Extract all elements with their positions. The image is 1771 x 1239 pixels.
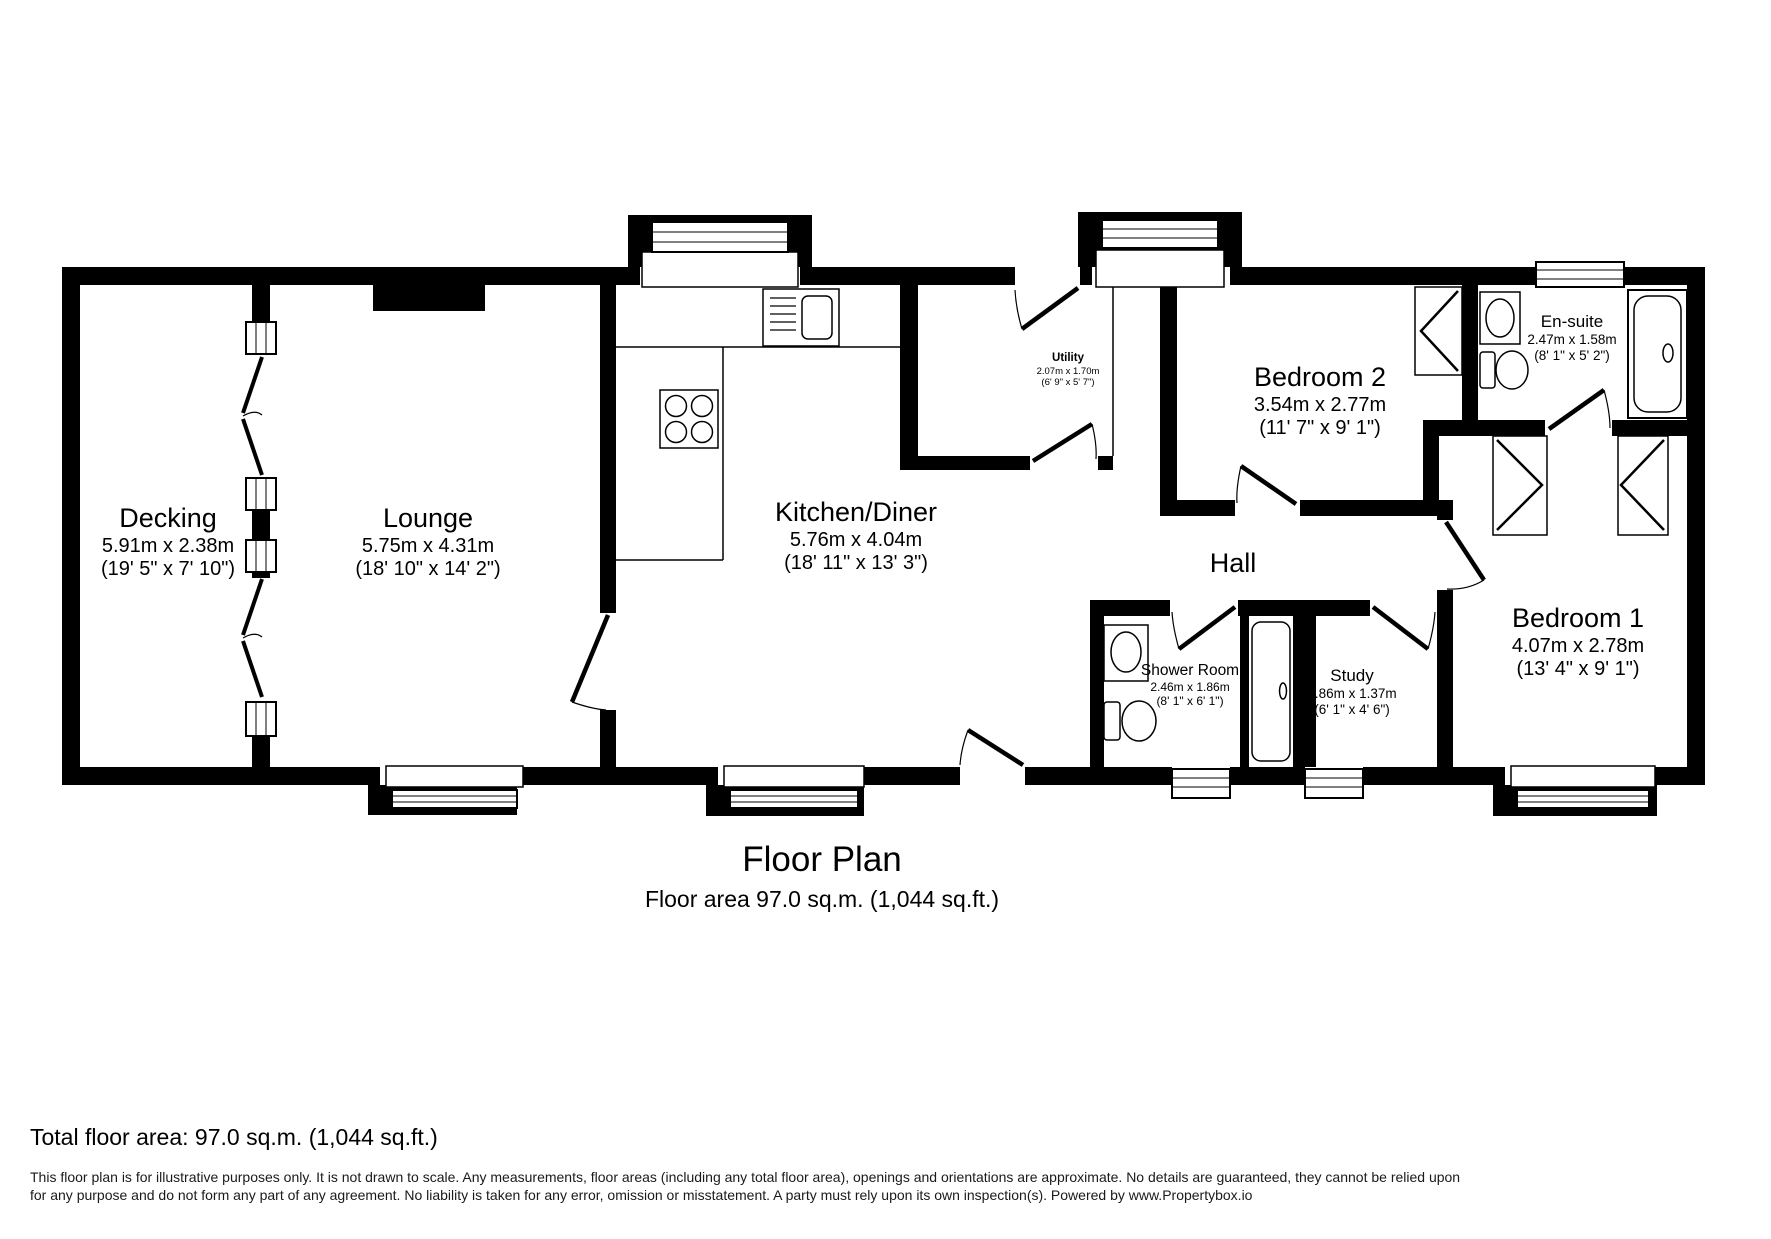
room-name: Study [1307,666,1396,686]
room-dims-metric: 3.54m x 2.77m [1254,394,1386,418]
room-dims-imperial: (18' 10" x 14' 2") [355,558,500,582]
floor-plan-drawing [0,0,1771,1239]
room-label-utility: Utility 2.07m x 1.70m (6' 9" x 5' 7") [1037,352,1100,388]
kitchen-back-door [960,730,1023,765]
bedroom1-bay-window [1517,790,1649,808]
room-name: Hall [1210,548,1257,580]
disclaimer-line-1: This floor plan is for illustrative purp… [30,1168,1750,1186]
room-name: Kitchen/Diner [775,497,937,529]
room-dims-metric: 4.07m x 2.78m [1512,635,1644,659]
room-dims-metric: 2.47m x 1.58m [1527,332,1616,348]
kitchen-lower-bay-window [730,790,858,808]
lounge-kitchen-door [572,615,608,710]
bedroom1-door [1446,522,1484,589]
study-door [1373,607,1435,649]
room-dims-metric: 5.75m x 4.31m [355,535,500,559]
room-dims-metric: 5.91m x 2.38m [101,535,235,559]
lounge-bay-window [392,790,517,808]
bedroom1-wardrobe-right [1618,436,1668,535]
room-dims-imperial: (19' 5" x 7' 10") [101,558,235,582]
utility-internal-door [1033,424,1096,461]
room-label-decking: Decking 5.91m x 2.38m (19' 5" x 7' 10") [101,503,235,582]
room-dims-metric: 5.76m x 4.04m [775,529,937,553]
room-name: Bedroom 1 [1512,603,1644,635]
room-label-bedroom2: Bedroom 2 3.54m x 2.77m (11' 7" x 9' 1") [1254,362,1386,441]
room-label-kitchen-diner: Kitchen/Diner 5.76m x 4.04m (18' 11" x 1… [775,497,937,576]
bedroom2-wardrobe [1415,287,1462,375]
ensuite-door [1549,390,1610,429]
room-dims-imperial: (11' 7" x 9' 1") [1254,417,1386,441]
bedroom2-bay-window [1102,220,1218,248]
kitchen-bay-window [652,222,788,252]
room-name: Utility [1037,352,1100,366]
room-name: Lounge [355,503,500,535]
shower-room-window [1172,769,1230,798]
ensuite-toilet [1480,351,1528,389]
room-dims-imperial: (8' 1" x 6' 1") [1141,694,1239,708]
kitchen-hob [660,390,718,448]
room-dims-metric: 2.46m x 1.86m [1141,680,1239,694]
room-dims-imperial: (6' 9" x 5' 7") [1037,377,1100,388]
ensuite-basin [1480,292,1520,344]
kitchen-sink [763,289,839,346]
study-window [1305,769,1363,798]
room-dims-metric: 1.86m x 1.37m [1307,686,1396,702]
ensuite-window [1536,262,1624,287]
room-label-lounge: Lounge 5.75m x 4.31m (18' 10" x 14' 2") [355,503,500,582]
room-name: Shower Room [1141,662,1239,680]
room-label-shower-room: Shower Room 2.46m x 1.86m (8' 1" x 6' 1"… [1141,662,1239,709]
utility-external-door [1015,288,1078,329]
room-name: Bedroom 2 [1254,362,1386,394]
floor-plan-page: Decking 5.91m x 2.38m (19' 5" x 7' 10") … [0,0,1771,1239]
room-dims-imperial: (18' 11" x 13' 3") [775,552,937,576]
floor-area-subtitle: Floor area 97.0 sq.m. (1,044 sq.ft.) [645,886,999,913]
shower-enclosure [1252,622,1290,761]
room-name: Decking [101,503,235,535]
bedroom2-door [1237,466,1296,504]
page-title: Floor Plan [742,840,902,880]
disclaimer-line-2: for any purpose and do not form any part… [30,1186,1750,1204]
shower-room-door [1172,607,1235,649]
bedroom1-wardrobe-left [1493,436,1547,535]
total-floor-area: Total floor area: 97.0 sq.m. (1,044 sq.f… [30,1124,438,1151]
room-label-study: Study 1.86m x 1.37m (6' 1" x 4' 6") [1307,666,1396,718]
room-label-ensuite: En-suite 2.47m x 1.58m (8' 1" x 5' 2") [1527,312,1616,364]
room-dims-imperial: (13' 4" x 9' 1") [1512,658,1644,682]
room-dims-imperial: (6' 1" x 4' 6") [1307,702,1396,718]
room-name: En-suite [1527,312,1616,332]
room-label-bedroom1: Bedroom 1 4.07m x 2.78m (13' 4" x 9' 1") [1512,603,1644,682]
room-label-hall: Hall [1210,548,1257,580]
room-dims-metric: 2.07m x 1.70m [1037,366,1100,377]
ensuite-bath [1628,290,1687,418]
room-dims-imperial: (8' 1" x 5' 2") [1527,348,1616,364]
